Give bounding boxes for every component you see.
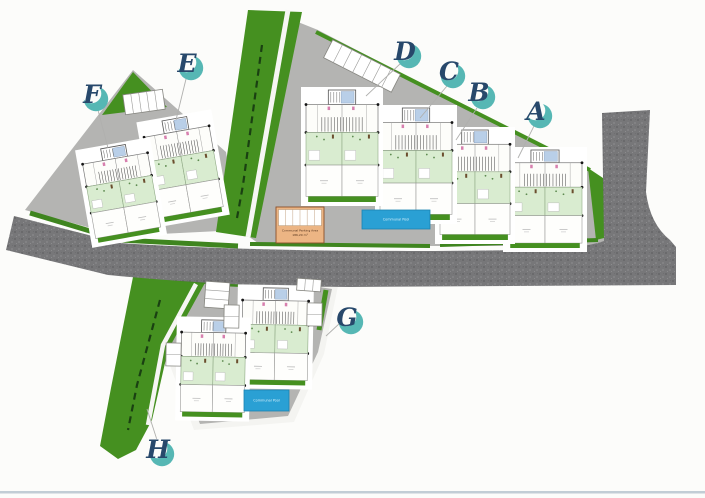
garden-deck [92,199,103,209]
garden-deck [215,372,225,381]
garden-door [332,135,334,139]
plan-accent [555,165,558,169]
pool-caption: Communal Pool [253,399,280,403]
garden-door [535,189,537,193]
pool-caption: Communal Pool [383,218,410,222]
marker-letter: H [145,435,171,464]
parking-stalls [307,303,322,326]
roof-skylight [474,132,487,143]
hedge-road-north-mid [250,244,430,246]
marker-letter: A [524,97,545,126]
garden-deck [183,372,193,381]
garden-shrub [433,157,435,159]
garden-shrub [323,139,325,141]
garden-deck [309,150,320,160]
plan-accent [328,107,331,111]
marker-letter: F [82,80,103,109]
building-g2 [175,316,251,421]
garden-shrub [485,175,487,177]
garden-shrub [526,193,528,195]
building-a [503,147,587,252]
garden-shrub [426,154,428,156]
parking-caption-line1: Communal Parking Area [282,228,318,232]
front-hedge [510,243,580,248]
marker-letter: G [336,303,357,332]
bottom-rule [0,491,705,494]
garden-door [266,327,268,331]
garden-door [500,174,502,178]
column-dot [451,121,454,124]
garden-shrub [492,178,494,180]
garden-cell [181,356,213,385]
garden-shrub [316,136,318,138]
garden-deck [124,193,135,203]
garden-shrub [397,157,399,159]
roof-skylight [275,289,287,299]
plan-accent [285,303,288,307]
column-dot [581,161,584,164]
garden-door [572,189,574,193]
garden-shrub [390,154,392,156]
roof-skylight [213,321,225,331]
garden-shrub [555,190,557,192]
column-dot [305,103,308,106]
roof-skylight [341,92,354,104]
garden-shrub [359,139,361,141]
roof-skylight [174,118,187,130]
parking-caption-line2: 186,20 m² [292,233,308,237]
garden-cell [213,357,245,386]
garden-deck [345,150,356,160]
site-plan-canvas: Communal Parking Area186,20 m²Communal P… [0,0,705,498]
plan-accent [262,302,265,306]
communal-pool: Communal Pool [244,390,289,411]
garden-deck [478,189,489,199]
garden-door [204,359,206,363]
front-hedge [308,196,376,202]
garden-cell [275,325,308,354]
garden-door [299,327,301,331]
plan-accent [461,146,464,150]
marker-letter: C [439,57,459,86]
building-c [375,105,457,224]
plan-accent [530,165,533,169]
garden-deck [383,168,394,178]
parking-stalls [297,278,322,292]
building-d [301,87,383,206]
garden-shrub [518,190,520,192]
front-hedge [442,235,508,241]
parking-stalls [224,305,239,328]
garden-shrub [352,136,354,138]
plan-accent [402,125,405,129]
garden-deck [548,203,559,212]
marker-letter: D [393,37,416,66]
roof-skylight [113,146,126,157]
stall-strip [297,278,322,292]
plan-accent [201,334,204,338]
garden-door [465,174,467,178]
garden-deck [277,340,287,349]
garden-door [442,153,444,157]
column-dot [377,103,380,106]
parking-stalls [166,343,181,366]
communal-parking-area: Communal Parking Area186,20 m² [276,207,324,243]
plan-accent [352,107,355,111]
garden-deck [419,168,430,178]
garden-deck [186,170,197,180]
garden-door [236,359,238,363]
plan-accent [426,125,429,129]
garden-door [406,153,408,157]
communal-pool: Communal Pool [362,210,430,229]
marker-letter: E [176,49,197,78]
garden-door [368,135,370,139]
plan-accent [222,335,225,339]
garden-cell [181,150,219,184]
garden-shrub [563,193,565,195]
column-dot [509,143,512,146]
plan-accent [485,146,488,150]
marker-letter: B [467,78,489,107]
site-plan-drawing: Communal Parking Area186,20 m²Communal P… [0,0,705,498]
roof-skylight [544,152,557,162]
